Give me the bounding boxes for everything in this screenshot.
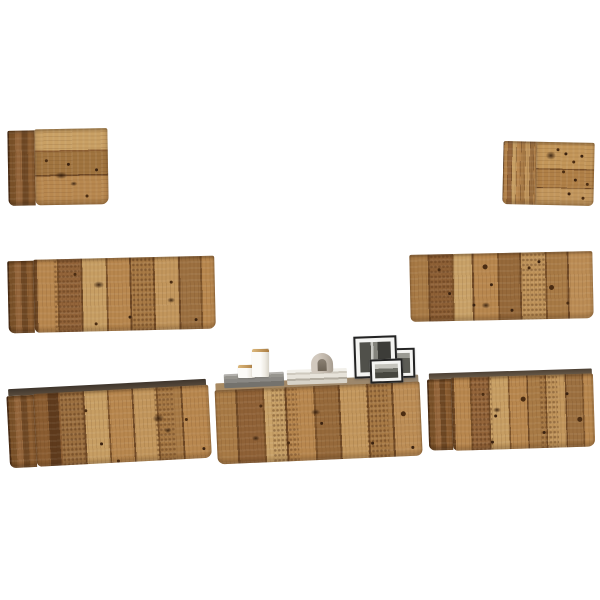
wood-grain-texture (7, 261, 35, 334)
wood-worm-holes (438, 268, 441, 271)
cabinet-front (33, 385, 212, 467)
wood-worm-holes (556, 148, 559, 151)
candle-gold-rim (252, 349, 269, 352)
cabinet-side-panel (6, 395, 37, 468)
cabinet-front (215, 382, 423, 465)
wood-knots (259, 404, 262, 407)
cabinet-side-panel (427, 379, 453, 451)
wood-grain-texture (6, 395, 37, 468)
cabinet-front (535, 142, 594, 206)
arch-ornament-hole (317, 359, 326, 371)
cabinet-front (451, 373, 595, 450)
cabinet-side-panel (7, 261, 35, 334)
wood-grain-texture (34, 128, 108, 205)
tv-cabinet-bottom-left (6, 379, 212, 469)
wall-cabinet-top-left (7, 128, 108, 206)
wood-speckle (364, 383, 389, 458)
wall-cabinet-top-right (502, 141, 594, 206)
picture-frame-landscape (370, 358, 404, 383)
wood-grain-texture (535, 142, 594, 206)
wood-speckle (539, 375, 559, 449)
wood-speckle (271, 387, 300, 462)
wood-speckle (53, 259, 81, 333)
wood-grain-texture (7, 130, 35, 205)
arch-ornament (311, 353, 334, 374)
cabinet-side-panel (7, 130, 35, 205)
wood-speckle (131, 257, 157, 331)
wood-speckle (469, 377, 493, 451)
cabinet-side-panel (502, 141, 536, 205)
product-photo (0, 0, 600, 600)
wood-grain-texture (215, 382, 423, 465)
cabinet-front (34, 128, 108, 205)
wood-speckle (521, 252, 546, 319)
tv-cabinet-bottom-center (214, 375, 422, 465)
wall-cabinet-mid-left (7, 256, 216, 334)
cabinet-front (33, 256, 216, 333)
wood-grain-texture (427, 379, 453, 451)
cabinet-front (409, 251, 593, 322)
wall-cabinet-mid-right (409, 251, 593, 322)
tv-cabinet-bottom-right (427, 368, 595, 451)
wood-speckle (429, 254, 452, 321)
wood-speckle (153, 387, 177, 461)
framed-photo (375, 364, 398, 379)
wood-speckle (59, 391, 87, 465)
wood-worm-holes (481, 393, 484, 396)
wood-grain-texture (502, 141, 536, 205)
wood-knots (45, 159, 48, 162)
wood-knots (73, 273, 76, 276)
pillar-candle-tall (252, 348, 269, 377)
